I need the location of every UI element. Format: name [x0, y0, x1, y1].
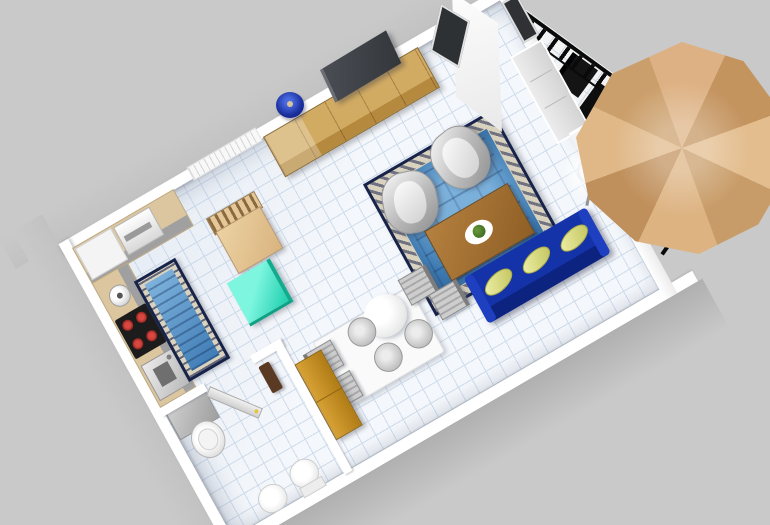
burner	[131, 336, 146, 351]
blue-vase[interactable]	[276, 92, 304, 118]
floorplan-3d-view	[0, 0, 770, 525]
door-handle-icon	[254, 409, 259, 414]
burner	[144, 328, 159, 343]
armchair-seat	[391, 178, 430, 226]
burner	[134, 310, 149, 325]
armchair-seat	[436, 131, 486, 184]
burner	[120, 318, 135, 333]
